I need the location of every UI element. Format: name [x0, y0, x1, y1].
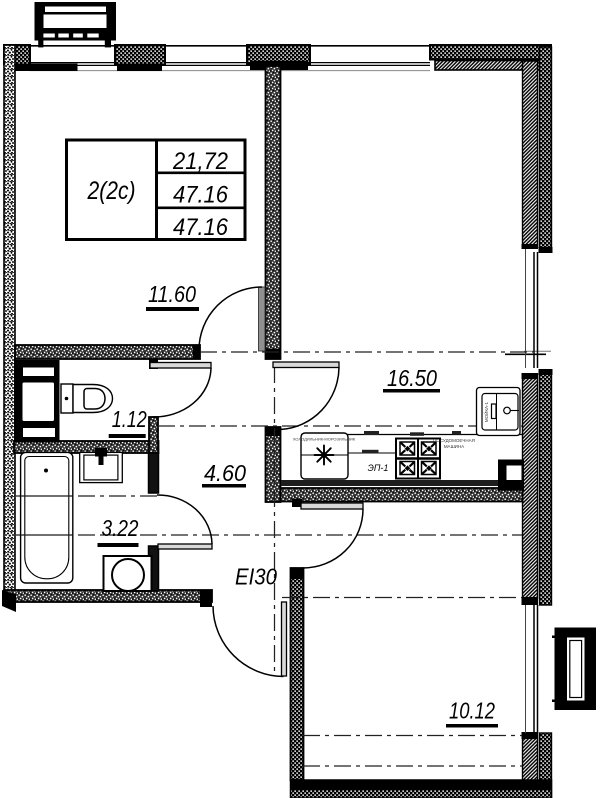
svg-text:2(2c): 2(2c): [87, 177, 136, 205]
svg-text:1.12: 1.12: [112, 406, 147, 432]
svg-text:ПОСУДОМОЕЧНАЯ: ПОСУДОМОЕЧНАЯ: [433, 438, 475, 443]
svg-text:10.12: 10.12: [449, 698, 495, 724]
svg-text:21,72: 21,72: [172, 148, 228, 175]
svg-text:4.60: 4.60: [204, 460, 246, 486]
svg-text:ХОЛОДИЛЬНИК-МОРОЗИЛЬНИК: ХОЛОДИЛЬНИК-МОРОЗИЛЬНИК: [293, 437, 356, 442]
svg-text:16.50: 16.50: [387, 365, 437, 391]
svg-text:3.22: 3.22: [102, 515, 139, 541]
svg-text:ЭП-1: ЭП-1: [368, 463, 389, 473]
svg-text:47.16: 47.16: [173, 182, 229, 209]
svg-text:МАШИНА: МАШИНА: [444, 444, 464, 449]
svg-text:47.16: 47.16: [173, 214, 229, 241]
svg-text:EI30: EI30: [235, 564, 277, 590]
svg-text:11.60: 11.60: [148, 281, 196, 307]
svg-text:МОЙКА-1: МОЙКА-1: [482, 401, 489, 422]
